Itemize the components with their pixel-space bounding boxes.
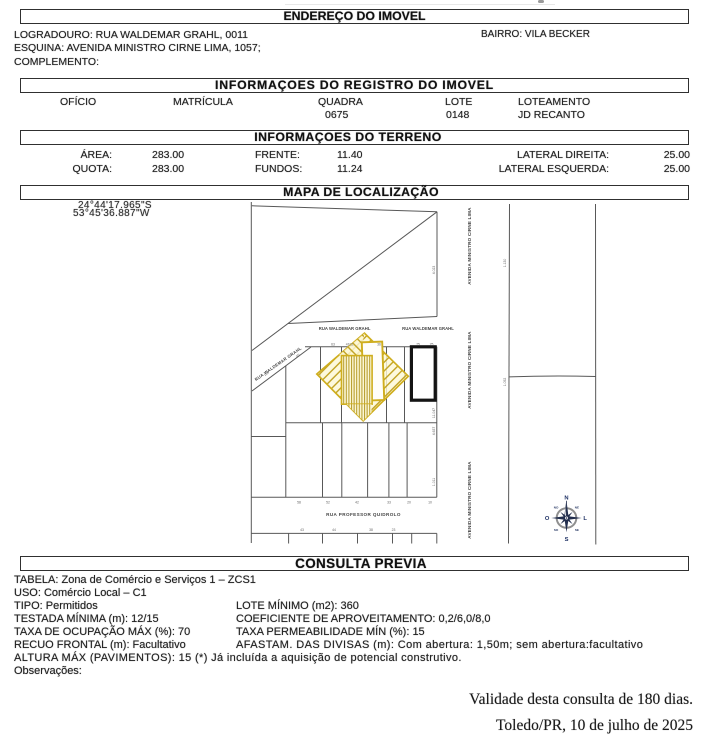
svg-text:SE: SE bbox=[575, 528, 579, 532]
svg-text:42: 42 bbox=[355, 501, 359, 505]
svg-text:S: S bbox=[565, 537, 569, 543]
svg-text:L: L bbox=[583, 516, 587, 522]
svg-text:36: 36 bbox=[377, 342, 381, 346]
svg-text:AVENIDA MINISTRO CIRNE LIMA: AVENIDA MINISTRO CIRNE LIMA bbox=[467, 207, 472, 285]
svg-text:4102.: 4102. bbox=[346, 342, 355, 346]
svg-text:75: 75 bbox=[416, 342, 420, 346]
svg-text:4.023: 4.023 bbox=[432, 266, 436, 275]
svg-text:11.047: 11.047 bbox=[432, 408, 436, 418]
svg-text:RUA PROFESSOR QUIDROLO: RUA PROFESSOR QUIDROLO bbox=[326, 512, 401, 517]
svg-text:AVENIDA MINISTRO CIRNE LIMA: AVENIDA MINISTRO CIRNE LIMA bbox=[467, 331, 472, 409]
svg-text:SO: SO bbox=[554, 528, 559, 532]
svg-text:RUA WALDEMAR GRAHL: RUA WALDEMAR GRAHL bbox=[319, 326, 371, 331]
svg-text:52: 52 bbox=[326, 501, 330, 505]
svg-text:44: 44 bbox=[332, 528, 336, 532]
svg-text:43: 43 bbox=[300, 528, 304, 532]
svg-text:N: N bbox=[564, 495, 568, 501]
svg-text:RUA WALDEMAR GRAHL: RUA WALDEMAR GRAHL bbox=[254, 346, 303, 382]
svg-text:38: 38 bbox=[369, 528, 373, 532]
svg-text:25: 25 bbox=[430, 342, 434, 346]
svg-text:RUA WALDEMAR GRAHL: RUA WALDEMAR GRAHL bbox=[402, 326, 454, 331]
svg-text:1.130: 1.130 bbox=[503, 259, 507, 268]
svg-text:33: 33 bbox=[387, 501, 391, 505]
svg-text:45: 45 bbox=[295, 353, 301, 359]
svg-text:1.011: 1.011 bbox=[432, 478, 436, 486]
svg-text:63: 63 bbox=[331, 342, 335, 346]
svg-text:AVENIDA MINISTRO CIRNE LIMA: AVENIDA MINISTRO CIRNE LIMA bbox=[467, 461, 472, 539]
svg-text:NO: NO bbox=[554, 505, 559, 509]
svg-text:58: 58 bbox=[297, 501, 301, 505]
svg-text:4.637: 4.637 bbox=[432, 427, 436, 436]
svg-text:20: 20 bbox=[407, 501, 411, 505]
svg-text:NE: NE bbox=[575, 505, 579, 509]
svg-text:1.052: 1.052 bbox=[503, 378, 507, 387]
svg-text:23: 23 bbox=[392, 528, 396, 532]
svg-text:10: 10 bbox=[428, 501, 432, 505]
svg-text:O: O bbox=[545, 516, 550, 522]
